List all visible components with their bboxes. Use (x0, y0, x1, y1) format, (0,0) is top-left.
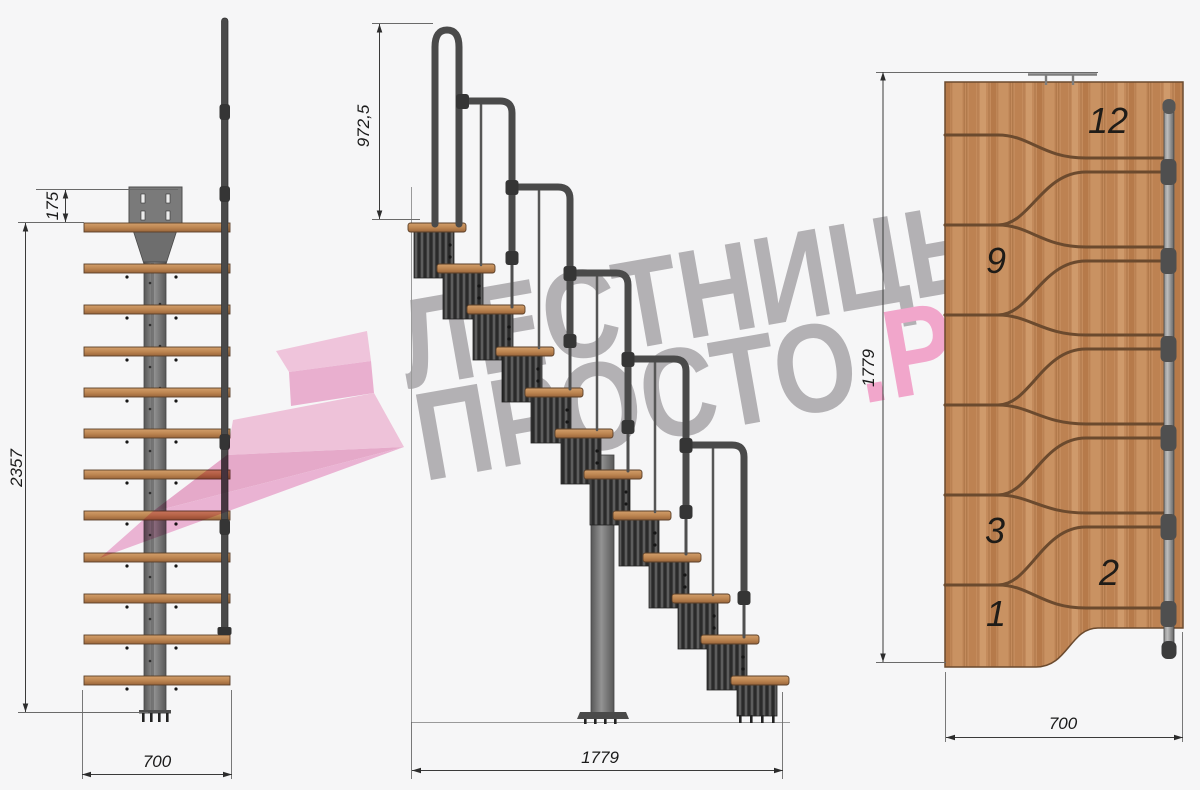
logo-facet (227, 393, 404, 455)
watermark-logo (0, 0, 1200, 790)
